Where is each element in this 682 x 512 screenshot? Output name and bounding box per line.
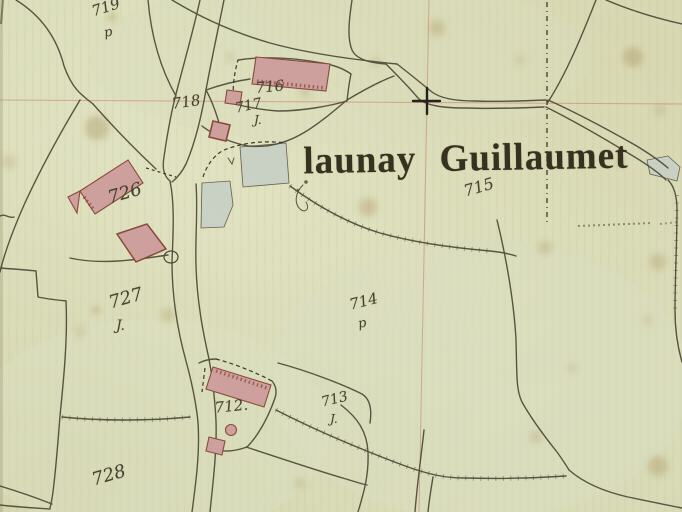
place-name-label: launay Guillaumet bbox=[303, 133, 629, 183]
parcel-label-713: 713 bbox=[320, 390, 349, 410]
parcel-letter-713: J. bbox=[330, 413, 338, 425]
parcel-letter-719: p bbox=[103, 26, 113, 40]
parcel-label-728: 728 bbox=[90, 463, 128, 490]
map-labels: launay Guillaumet 719 p 718 716 717 J. 7… bbox=[0, 0, 682, 512]
parcel-letter-717: J. bbox=[254, 114, 262, 126]
parcel-letter-727: J. bbox=[116, 319, 125, 333]
parcel-label-727: 727 bbox=[107, 286, 145, 313]
parcel-label-718: 718 bbox=[171, 93, 201, 112]
parcel-label-712: 712. bbox=[214, 398, 249, 416]
parcel-label-726: 726 bbox=[106, 181, 144, 208]
parcel-letter-714: p bbox=[357, 317, 367, 331]
parcel-label-719: 719 bbox=[90, 0, 122, 19]
parcel-label-714: 714 bbox=[348, 291, 379, 312]
cadastral-map: launay Guillaumet 719 p 718 716 717 J. 7… bbox=[0, 0, 682, 512]
parcel-label-716: 716 bbox=[255, 79, 285, 96]
